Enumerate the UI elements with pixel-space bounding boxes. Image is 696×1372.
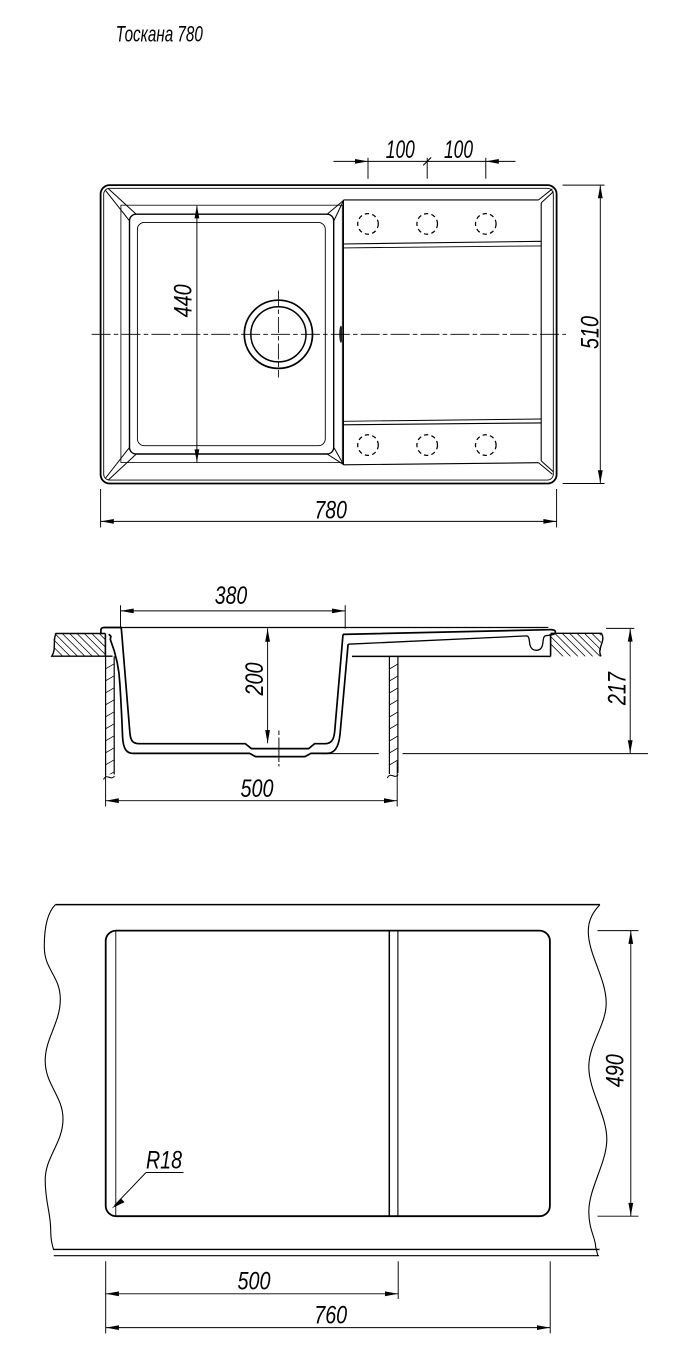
svg-text:R18: R18 <box>146 1146 182 1174</box>
svg-text:490: 490 <box>601 1054 629 1087</box>
svg-text:Тоскана 780: Тоскана 780 <box>116 21 203 46</box>
svg-text:440: 440 <box>169 284 197 317</box>
svg-text:500: 500 <box>238 1268 271 1296</box>
svg-text:200: 200 <box>241 662 269 696</box>
svg-text:100: 100 <box>386 136 415 164</box>
svg-text:380: 380 <box>215 582 248 610</box>
svg-text:780: 780 <box>314 497 347 525</box>
svg-text:217: 217 <box>604 671 632 706</box>
svg-text:510: 510 <box>576 316 604 349</box>
svg-text:100: 100 <box>444 136 473 164</box>
svg-text:500: 500 <box>241 775 274 803</box>
svg-text:760: 760 <box>314 1302 347 1330</box>
